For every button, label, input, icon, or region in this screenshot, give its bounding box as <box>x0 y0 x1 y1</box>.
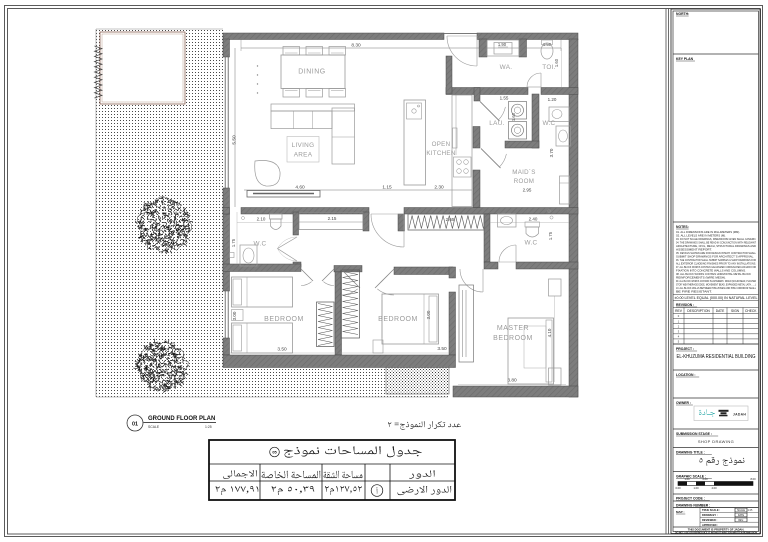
svg-text:MASTER: MASTER <box>497 325 529 332</box>
svg-text:ALL EXTERIOR CLADDING FINISHE: ALL EXTERIOR CLADDING FINISHES PRIOR TO … <box>676 261 756 265</box>
svg-text:SCALE: SCALE <box>148 425 160 429</box>
svg-text:SIGN: SIGN <box>731 309 740 313</box>
svg-text:01. ALL DIMENSIONS ARE IN MILL: 01. ALL DIMENSIONS ARE IN MILLIMETERS (M… <box>676 230 740 234</box>
svg-text:1.75: 1.75 <box>548 231 553 240</box>
svg-text:DRAWING NUMBER :: DRAWING NUMBER : <box>676 504 710 508</box>
svg-text:NORTH:: NORTH: <box>676 12 689 16</box>
svg-text:PROJECT :: PROJECT : <box>676 347 694 351</box>
svg-text:5.50: 5.50 <box>232 135 238 145</box>
svg-text:2.95: 2.95 <box>523 188 532 193</box>
svg-text:2.10: 2.10 <box>257 217 266 222</box>
svg-text:W.C: W.C <box>525 240 538 247</box>
svg-text:1.75: 1.75 <box>231 238 236 247</box>
svg-text:REINFORCEMENTS (WIRE MESH).: REINFORCEMENTS (WIRE MESH). <box>676 276 726 280</box>
svg-text:OPEN: OPEN <box>432 141 451 148</box>
svg-text:1:25: 1:25 <box>748 509 753 512</box>
svg-text:KITCHEN: KITCHEN <box>426 150 455 157</box>
svg-text:8.00: 8.00 <box>750 477 756 481</box>
svg-text:±0.00 LEVEL EQUAL (000.00) IN: ±0.00 LEVEL EQUAL (000.00) IN NATURAL LE… <box>675 296 758 300</box>
svg-text:07. ALL BLOCK WORKS CONTAIN GA: 07. ALL BLOCK WORKS CONTAIN GALVANIZED C… <box>676 265 756 269</box>
svg-text:DINING: DINING <box>298 69 326 76</box>
svg-text:1:25: 1:25 <box>205 425 212 429</box>
svg-text:ROOM: ROOM <box>514 178 534 185</box>
svg-text:BEDROOM: BEDROOM <box>493 335 533 342</box>
svg-text:EL-KHUZUMA RESIDENTIAL BUILDIN: EL-KHUZUMA RESIDENTIAL BUILDING <box>677 354 756 360</box>
svg-text:DATE: DATE <box>716 309 725 313</box>
svg-text:ARCHITECTURE, CIVIL, MECH, STR: ARCHITECTURE, CIVIL, MECH, STRUCTURAL DR… <box>676 244 756 248</box>
svg-text:GROUND FLOOR PLAN: GROUND FLOOR PLAN <box>148 416 215 422</box>
svg-text:FIXATION INTO CONCRETE WALLS A: FIXATION INTO CONCRETE WALLS AND COLUMNS… <box>676 269 746 273</box>
svg-text:TOI.: TOI. <box>542 64 556 71</box>
svg-text:LAU.: LAU. <box>489 120 504 127</box>
svg-text:DRAWN BY :: DRAWN BY : <box>702 513 718 517</box>
svg-text:SUBMIT SHOP DRAWINGS FOR ARCHI: SUBMIT SHOP DRAWINGS FOR ARCHITECT´S APP… <box>676 254 754 258</box>
svg-text:4.10: 4.10 <box>547 328 552 337</box>
svg-text:BEDROOM: BEDROOM <box>378 316 418 323</box>
svg-text:WA.: WA. <box>500 64 513 71</box>
svg-text:PROJECT CODE :: PROJECT CODE : <box>676 497 705 501</box>
svg-text:09. ALL BLOCK WORKS CONTAIN PL: 09. ALL BLOCK WORKS CONTAIN PLASTERERS´ … <box>676 279 756 283</box>
svg-text:AREA: AREA <box>294 152 313 159</box>
svg-text:1.55: 1.55 <box>500 96 509 101</box>
svg-text:3.00: 3.00 <box>232 311 237 320</box>
svg-text:8.30: 8.30 <box>351 43 361 49</box>
svg-text:DATE: DATE <box>738 514 745 517</box>
svg-text:04. THE DRAWINGS SHALL BE READ: 04. THE DRAWINGS SHALL BE READ IN CONJUN… <box>676 240 756 244</box>
svg-text:2.15: 2.15 <box>328 216 337 221</box>
svg-text:0.00: 0.00 <box>675 486 681 490</box>
svg-text:REVISION :: REVISION : <box>676 303 694 307</box>
svg-text:SHOP DRAWING: SHOP DRAWING <box>698 439 734 444</box>
svg-text:DO NOT USE OR REPRODUCE IT WIT: DO NOT USE OR REPRODUCE IT WITHOUT WRITT… <box>675 530 757 534</box>
svg-text:1.00: 1.00 <box>693 486 699 490</box>
svg-text:REV.: REV. <box>738 519 744 522</box>
svg-text:MAID´S: MAID´S <box>512 169 535 176</box>
svg-text:OWNER :: OWNER : <box>676 401 691 405</box>
svg-text:10. ALL BLOCK WALLS BETWEEN PI: 10. ALL BLOCK WALLS BETWEEN PIPE ZONES A… <box>676 286 756 290</box>
svg-text:APPROVED :: APPROVED : <box>702 523 718 527</box>
svg-text:W.C: W.C <box>254 241 267 248</box>
svg-text:MAP :: MAP : <box>676 510 684 514</box>
svg-text:CHECK: CHECK <box>745 309 757 313</box>
svg-text:W.C: W.C <box>543 120 556 127</box>
svg-text:STOP, WEATHERAGE EDGE, MOVEMEN: STOP, WEATHERAGE EDGE, MOVEMENT BEAD, EX… <box>676 283 756 287</box>
svg-text:DRAWING TITLE :: DRAWING TITLE : <box>676 451 705 455</box>
svg-text:1.00: 1.00 <box>684 477 690 481</box>
svg-text:3.70: 3.70 <box>549 148 554 157</box>
svg-text:KEY PLAN: KEY PLAN <box>676 57 694 61</box>
svg-text:3.50: 3.50 <box>277 347 287 353</box>
svg-text:NOTES:: NOTES: <box>676 225 689 229</box>
svg-text:05. DETAILS SHOWN ARE FOR DESI: 05. DETAILS SHOWN ARE FOR DESIGN INTENT.… <box>676 251 757 255</box>
svg-text:4.60: 4.60 <box>295 185 305 191</box>
svg-text:ASSESSMENT REPORT.: ASSESSMENT REPORT. <box>676 247 712 251</box>
svg-text:BE FIRE RESISTANT.: BE FIRE RESISTANT. <box>676 290 712 294</box>
svg-text:3.50: 3.50 <box>437 346 447 352</box>
svg-text:SUBMISSION STAGE :: SUBMISSION STAGE : <box>676 432 712 436</box>
svg-text:REV: REV <box>675 309 683 313</box>
svg-text:REVIEWED :: REVIEWED : <box>702 518 718 522</box>
svg-text:3.00: 3.00 <box>426 310 431 319</box>
svg-text:2.00: 2.00 <box>702 477 708 481</box>
svg-text:SCALE: SCALE <box>737 509 745 512</box>
svg-text:2.40: 2.40 <box>529 217 538 222</box>
svg-text:JADAH: JADAH <box>733 412 746 416</box>
svg-text:4.00: 4.00 <box>711 486 717 490</box>
svg-text:08. ALL BLOCK WORKS CONTAIN HO: 08. ALL BLOCK WORKS CONTAIN HORIZONTAL M… <box>676 272 751 276</box>
svg-text:LIVING: LIVING <box>292 142 315 149</box>
svg-text:1.15: 1.15 <box>382 185 392 191</box>
svg-text:02. ALL LEVELS ARE IN METERS (: 02. ALL LEVELS ARE IN METERS (M). <box>676 233 726 237</box>
svg-text:LOCATION :: LOCATION : <box>676 373 696 377</box>
svg-text:DESCRIPTION: DESCRIPTION <box>687 309 710 313</box>
svg-text:TRUE SCALE :: TRUE SCALE : <box>702 508 720 512</box>
svg-text:1.20: 1.20 <box>548 97 557 102</box>
svg-text:3.80: 3.80 <box>507 378 517 384</box>
svg-text:1.60: 1.60 <box>511 112 516 121</box>
svg-text:03. DO NOT SCALE DRAWINGS, DIM: 03. DO NOT SCALE DRAWINGS, DIMENSIONS GI… <box>676 237 756 241</box>
svg-text:01: 01 <box>132 421 138 427</box>
svg-text:06. THE CONTRACTOR SHALL SUBM: 06. THE CONTRACTOR SHALL SUBMIT SAMPLES … <box>676 258 756 262</box>
svg-text:BEDROOM: BEDROOM <box>264 316 304 323</box>
svg-text:2.30: 2.30 <box>434 185 444 191</box>
